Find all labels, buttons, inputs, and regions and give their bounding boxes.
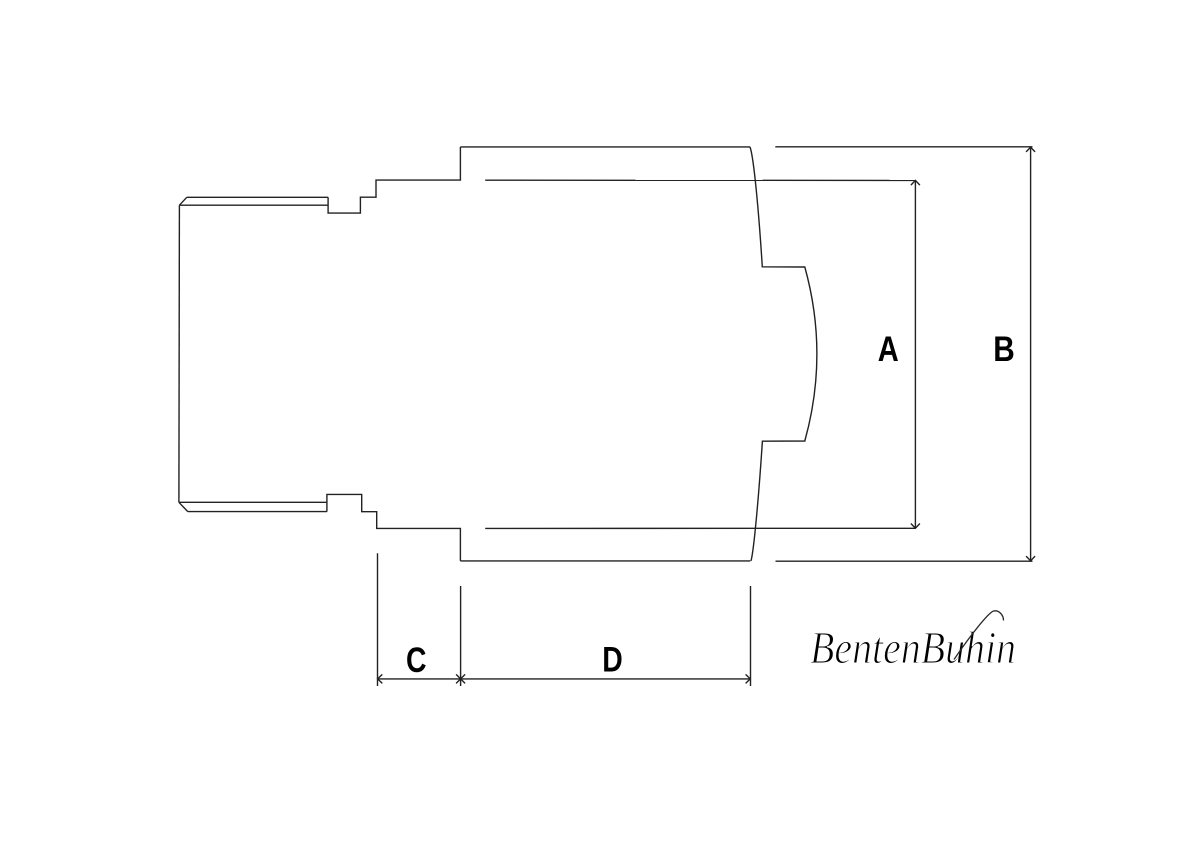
svg-text:BentenBuhin: BentenBuhin <box>810 623 1016 673</box>
svg-text:A: A <box>878 330 899 369</box>
svg-text:B: B <box>993 330 1015 369</box>
svg-text:D: D <box>602 641 623 680</box>
svg-text:C: C <box>406 641 427 680</box>
